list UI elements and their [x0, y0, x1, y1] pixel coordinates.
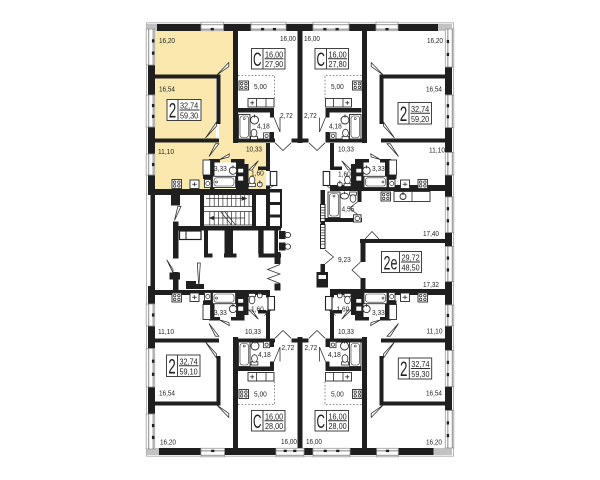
svg-text:11,10: 11,10 — [158, 329, 174, 336]
svg-text:2: 2 — [169, 100, 177, 123]
svg-text:17,40: 17,40 — [423, 231, 439, 238]
svg-text:27,90: 27,90 — [265, 60, 284, 69]
svg-text:10,33: 10,33 — [246, 147, 262, 154]
svg-text:С: С — [253, 412, 262, 433]
svg-text:2,72: 2,72 — [304, 113, 317, 120]
svg-text:59,10: 59,10 — [180, 367, 199, 376]
svg-text:С: С — [317, 412, 326, 433]
svg-text:5,00: 5,00 — [254, 84, 267, 91]
svg-text:16,00: 16,00 — [265, 50, 284, 59]
svg-text:16,20: 16,20 — [159, 38, 175, 45]
svg-text:С: С — [253, 50, 262, 71]
svg-text:5,00: 5,00 — [331, 84, 344, 91]
svg-text:2,72: 2,72 — [282, 345, 295, 352]
svg-text:2,72: 2,72 — [305, 345, 318, 352]
svg-text:2: 2 — [168, 356, 176, 379]
svg-text:2: 2 — [400, 103, 408, 126]
svg-text:16,20: 16,20 — [427, 38, 443, 45]
svg-text:1,60: 1,60 — [251, 307, 264, 314]
svg-text:16,20: 16,20 — [160, 440, 176, 447]
svg-text:16,00: 16,00 — [304, 36, 320, 43]
svg-text:32,74: 32,74 — [180, 102, 199, 111]
svg-text:10,33: 10,33 — [245, 329, 261, 336]
svg-text:4,18: 4,18 — [257, 124, 270, 131]
svg-text:59,30: 59,30 — [411, 370, 430, 379]
svg-text:1,60: 1,60 — [337, 307, 350, 314]
svg-text:32,74: 32,74 — [411, 360, 430, 369]
svg-text:4,55: 4,55 — [342, 207, 355, 214]
svg-text:16,00: 16,00 — [306, 439, 322, 446]
svg-text:10,33: 10,33 — [338, 147, 354, 154]
svg-text:3,33: 3,33 — [372, 310, 385, 317]
svg-text:59,30: 59,30 — [180, 111, 199, 120]
svg-text:17,32: 17,32 — [423, 282, 439, 289]
svg-text:2: 2 — [400, 358, 408, 381]
svg-text:1,60: 1,60 — [251, 171, 264, 178]
svg-text:27,80: 27,80 — [329, 60, 348, 69]
svg-text:3,33: 3,33 — [214, 166, 227, 173]
svg-text:2е: 2е — [384, 254, 398, 275]
svg-text:16,54: 16,54 — [426, 87, 442, 94]
svg-text:16,00: 16,00 — [280, 36, 296, 43]
svg-text:4,18: 4,18 — [258, 352, 271, 359]
svg-text:16,00: 16,00 — [329, 50, 348, 59]
svg-text:28,00: 28,00 — [265, 422, 284, 431]
svg-text:28,00: 28,00 — [329, 422, 348, 431]
svg-text:4,18: 4,18 — [329, 124, 342, 131]
svg-text:16,00: 16,00 — [329, 412, 348, 421]
svg-text:16,54: 16,54 — [159, 87, 175, 94]
svg-text:9,23: 9,23 — [338, 257, 351, 264]
svg-text:29,72: 29,72 — [402, 254, 421, 263]
svg-text:3,33: 3,33 — [372, 166, 385, 173]
svg-text:16,00: 16,00 — [281, 439, 297, 446]
svg-text:32,74: 32,74 — [180, 357, 199, 366]
svg-text:32,74: 32,74 — [411, 105, 430, 114]
svg-text:4,18: 4,18 — [328, 352, 341, 359]
svg-text:16,54: 16,54 — [159, 391, 175, 398]
svg-text:59,20: 59,20 — [411, 115, 430, 124]
svg-text:11,10: 11,10 — [429, 148, 445, 155]
svg-text:16,20: 16,20 — [426, 440, 442, 447]
svg-text:48,50: 48,50 — [402, 263, 421, 272]
svg-text:16,54: 16,54 — [426, 391, 442, 398]
svg-text:10,33: 10,33 — [338, 329, 354, 336]
svg-text:16,00: 16,00 — [265, 412, 284, 421]
svg-text:1,60: 1,60 — [338, 172, 351, 179]
svg-text:11,10: 11,10 — [427, 329, 443, 336]
svg-text:3,33: 3,33 — [214, 310, 227, 317]
svg-text:5,00: 5,00 — [254, 392, 267, 399]
svg-text:5,00: 5,00 — [331, 392, 344, 399]
svg-text:11,10: 11,10 — [158, 149, 174, 156]
svg-text:2,72: 2,72 — [280, 113, 293, 120]
svg-text:С: С — [317, 50, 326, 71]
